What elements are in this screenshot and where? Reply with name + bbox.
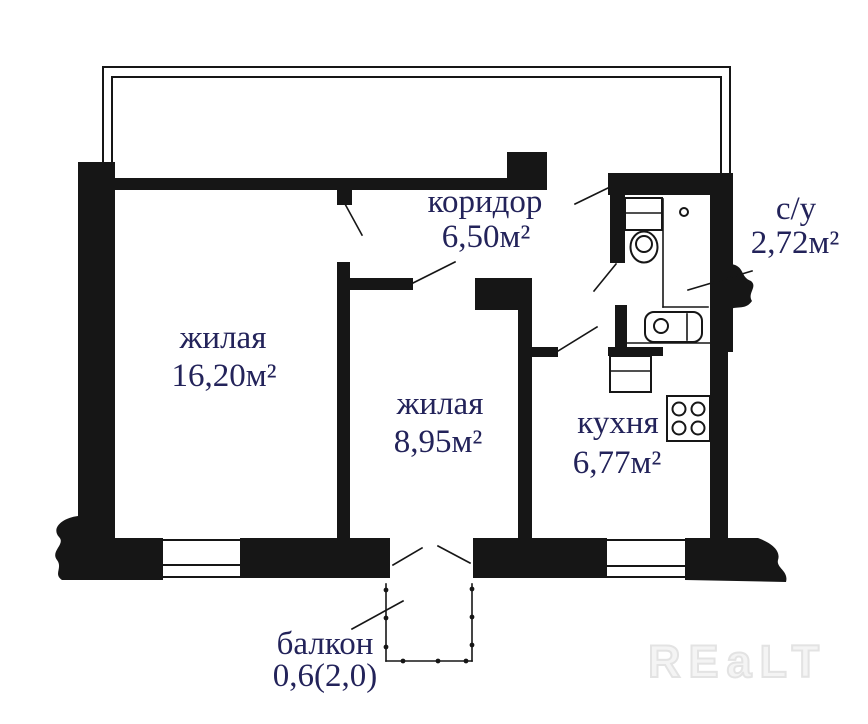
bathtub-icon [645, 312, 702, 342]
bathroom-top-wall [608, 173, 733, 195]
room2-top-wall [350, 278, 413, 290]
bottom-wall-middle [240, 538, 390, 578]
right-exterior-wall-upper [710, 195, 733, 352]
door-handle-icon [680, 208, 688, 216]
corridor-area: 6,50м² [442, 220, 531, 254]
kitchen-door-swing [558, 327, 597, 351]
kitchen-wall [518, 290, 532, 538]
entrance-door-swing [575, 188, 608, 204]
living-room-2-name: жилая [397, 387, 484, 421]
loggia-outline [103, 67, 730, 174]
balcony-outline [384, 584, 475, 663]
bathroom-left-wall-upper [610, 193, 625, 263]
corridor-name: коридор [428, 185, 543, 219]
kitchen-door-stub [532, 347, 558, 357]
walls [55, 152, 786, 582]
toilet-icon [631, 232, 658, 263]
kitchen-sink-icon [610, 356, 651, 392]
floor-plan-drawing [0, 0, 868, 724]
corridor-door-stub [337, 188, 352, 205]
floor-plan: жилая 16,20м² жилая 8,95м² кухня 6,77м² … [0, 0, 868, 724]
bottom-wall-right-break [685, 538, 786, 582]
living1-door-swing [345, 204, 362, 235]
balcony-door-swing-right [438, 546, 470, 563]
kitchen-name: кухня [577, 406, 658, 440]
bottom-wall-kitchen-left [473, 538, 607, 578]
left-exterior-wall [78, 162, 115, 544]
interior-wall-rooms [337, 262, 350, 538]
living-room-1-area: 16,20м² [171, 359, 276, 393]
balcony-door-swing-left [393, 548, 422, 565]
bathroom-left-wall-lower [615, 305, 627, 349]
window-living1 [163, 540, 240, 577]
living-room-2-area: 8,95м² [394, 425, 483, 459]
bathroom-bottom-wall [608, 347, 663, 356]
balcony-name: балкон [277, 627, 374, 661]
window-kitchen [607, 540, 685, 577]
watermark-logo: REaLT [648, 636, 827, 688]
bathroom-name: с/у [776, 192, 816, 226]
kitchen-area: 6,77м² [573, 446, 662, 480]
stove-icon [667, 396, 710, 441]
balcony-pointer-line [352, 601, 403, 629]
bathroom-door-swing [594, 264, 616, 291]
balcony-area: 0,6(2,0) [273, 659, 377, 693]
bathroom-area: 2,72м² [751, 226, 840, 260]
right-exterior-wall-lower [710, 352, 728, 538]
left-wall-break [55, 516, 163, 580]
sink-icon [625, 198, 662, 230]
living2-door-swing [413, 262, 455, 283]
living-room-1-name: жилая [180, 321, 267, 355]
